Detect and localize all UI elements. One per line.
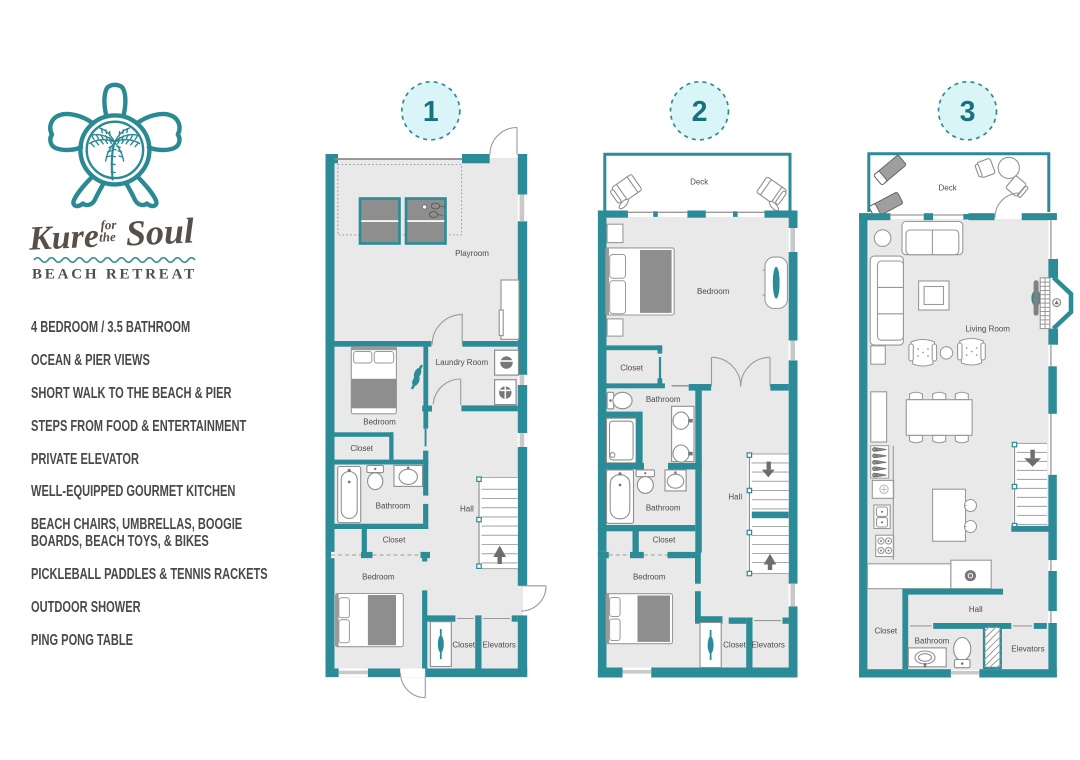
svg-text:Closet: Closet	[383, 535, 406, 544]
svg-text:Hall: Hall	[728, 492, 742, 501]
svg-text:Bedroom: Bedroom	[633, 573, 666, 582]
svg-text:Living Room: Living Room	[965, 325, 1010, 334]
svg-text:Bedroom: Bedroom	[362, 573, 395, 582]
svg-text:Closet: Closet	[723, 641, 746, 650]
svg-text:Elevators: Elevators	[752, 641, 785, 650]
svg-text:Soul: Soul	[125, 211, 195, 254]
svg-text:2: 2	[692, 96, 708, 128]
svg-text:Laundry Room: Laundry Room	[436, 358, 489, 367]
svg-text:Closet: Closet	[452, 641, 475, 650]
svg-text:Playroom: Playroom	[455, 249, 489, 258]
svg-text:Bathroom: Bathroom	[646, 504, 681, 513]
svg-text:3: 3	[960, 96, 976, 128]
svg-text:Deck: Deck	[938, 184, 957, 193]
svg-text:Closet: Closet	[653, 535, 676, 544]
svg-text:1: 1	[423, 96, 439, 128]
svg-text:Bathroom: Bathroom	[376, 502, 411, 511]
svg-text:Kure: Kure	[27, 218, 99, 258]
svg-text:Elevators: Elevators	[483, 641, 516, 650]
svg-text:Deck: Deck	[690, 178, 709, 187]
svg-text:the: the	[99, 229, 116, 245]
svg-text:Bathroom: Bathroom	[646, 395, 681, 404]
svg-text:Bathroom: Bathroom	[915, 636, 950, 645]
svg-text:Hall: Hall	[969, 605, 983, 614]
svg-text:Closet: Closet	[620, 364, 643, 373]
svg-text:Closet: Closet	[350, 444, 373, 453]
svg-text:Closet: Closet	[874, 627, 897, 636]
svg-text:Elevators: Elevators	[1011, 645, 1044, 654]
svg-text:BEACH RETREAT: BEACH RETREAT	[32, 267, 197, 283]
svg-text:Bedroom: Bedroom	[697, 287, 730, 296]
svg-text:Bedroom: Bedroom	[363, 418, 396, 427]
svg-text:Hall: Hall	[460, 505, 474, 514]
